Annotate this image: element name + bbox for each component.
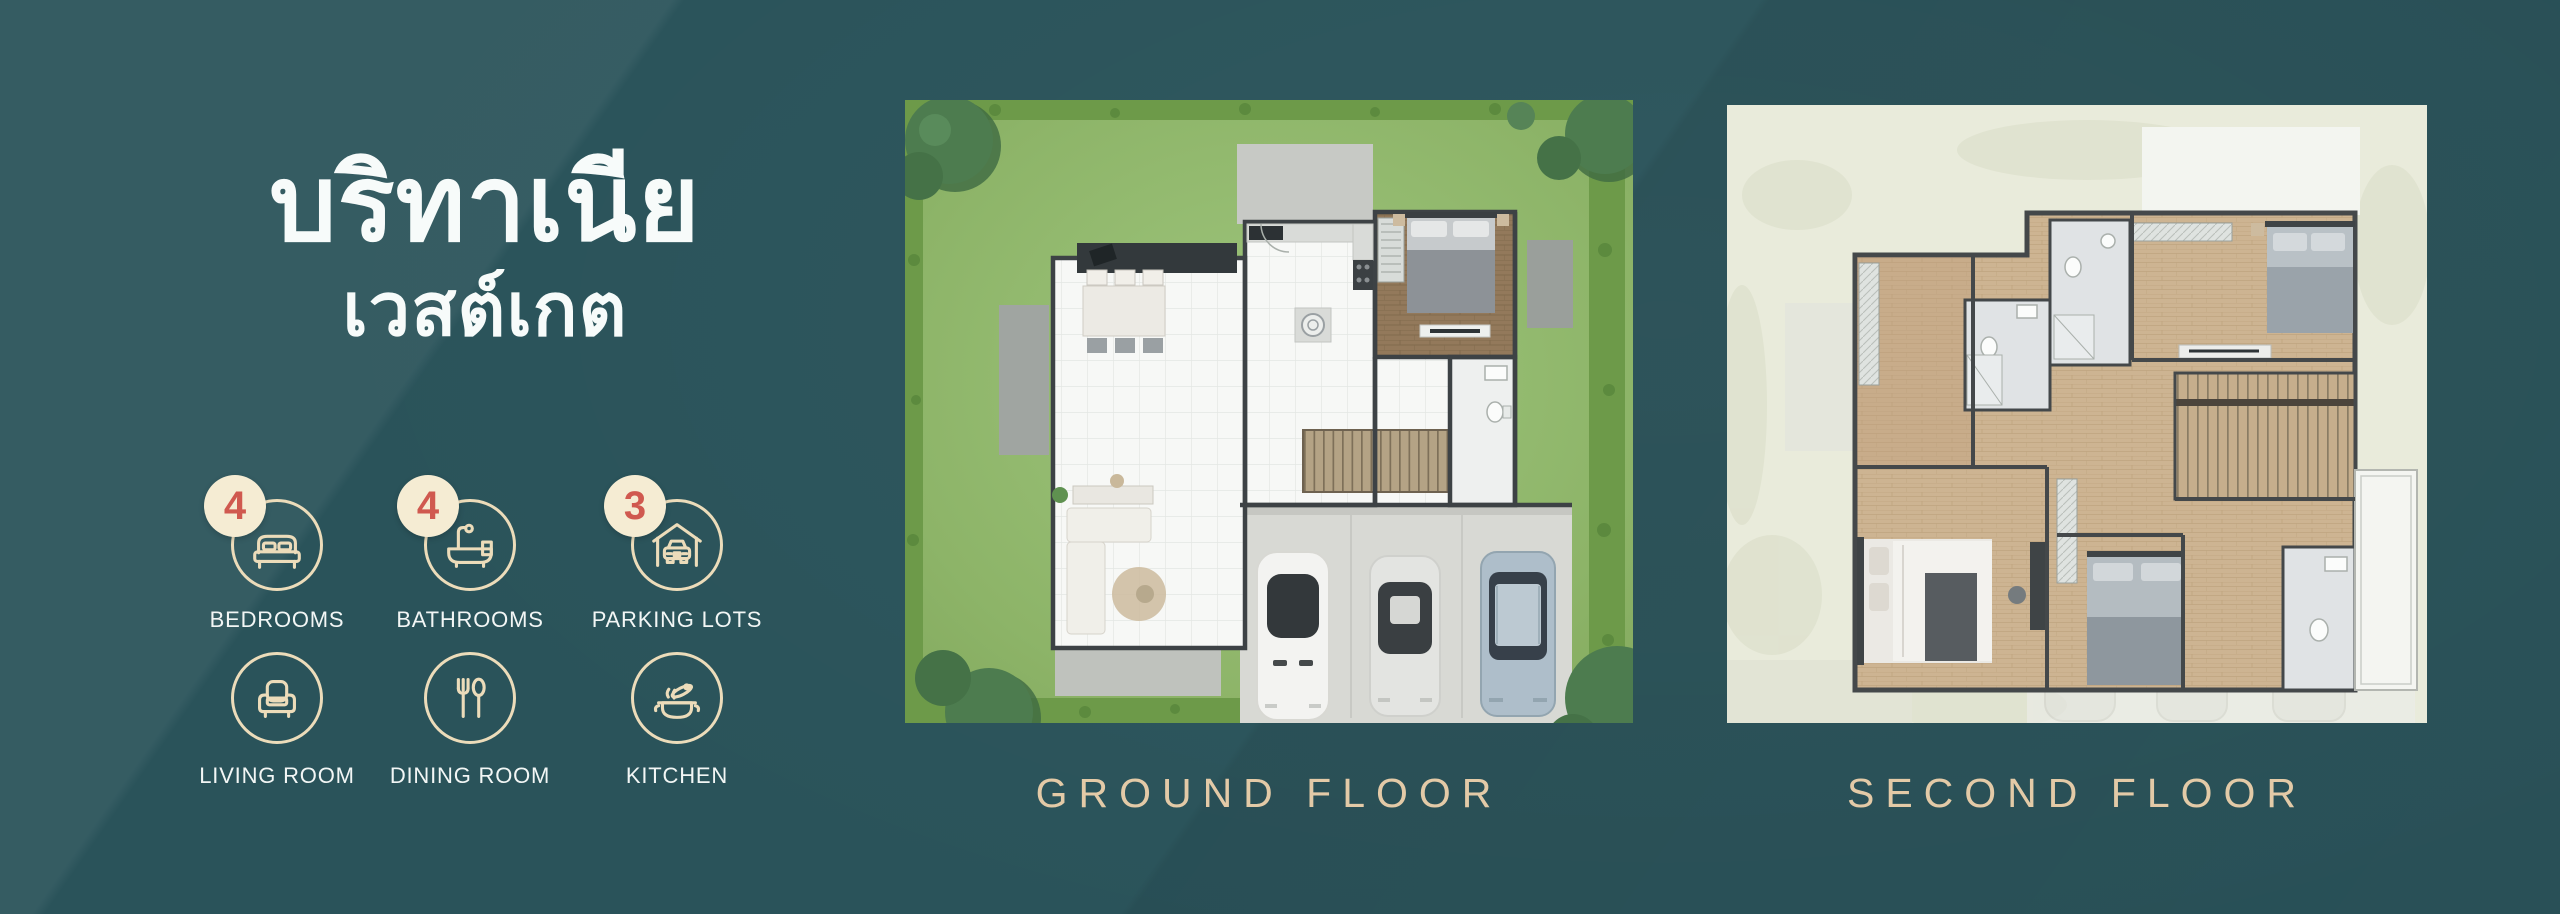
second-floor-plan (1727, 105, 2427, 723)
car-white (1257, 552, 1329, 720)
feature-bedrooms: 4 BEDROOMS (189, 473, 365, 633)
cooking-pot-icon (631, 652, 723, 744)
feature-dining-room: DINING ROOM (382, 652, 558, 789)
feature-parking-label: PARKING LOTS (589, 607, 765, 633)
balcony (2355, 470, 2417, 690)
feature-kitchen: KITCHEN (589, 652, 765, 789)
parking-count-badge: 3 (604, 475, 666, 537)
feature-kitchen-iconstack (631, 652, 723, 744)
bathrooms-count-badge: 4 (397, 475, 459, 537)
car-suv-blue (1481, 552, 1555, 716)
entry-pad (1237, 144, 1373, 224)
feature-living-room: LIVING ROOM (189, 652, 365, 789)
ground-floor-label: GROUND FLOOR (905, 770, 1633, 826)
feature-bathrooms-iconstack: 4 (424, 499, 516, 591)
feature-living-label: LIVING ROOM (189, 763, 365, 789)
feature-bedrooms-label: BEDROOMS (189, 607, 365, 633)
feature-dining-iconstack (424, 652, 516, 744)
feature-bedrooms-iconstack: 4 (231, 499, 323, 591)
car-silver (1370, 556, 1440, 716)
feature-parking-lots: 3 PARKING LOTS (589, 473, 765, 633)
second-stairs (2175, 373, 2355, 499)
dining-set (1083, 270, 1165, 353)
feature-dining-label: DINING ROOM (382, 763, 558, 789)
project-title-line1: บริทาเนีย (135, 150, 835, 258)
feature-bathrooms-label: BATHROOMS (382, 607, 558, 633)
bedrooms-count-badge: 4 (204, 475, 266, 537)
feature-parking-iconstack: 3 (631, 499, 723, 591)
promo-banner: บริทาเนีย เวสต์เกต 4 BEDROOMS 4 (0, 0, 2560, 914)
project-title: บริทาเนีย เวสต์เกต (135, 150, 835, 348)
feature-bathrooms: 4 BATHROOMS (382, 473, 558, 633)
feature-kitchen-label: KITCHEN (589, 763, 765, 789)
project-title-line2: เวสต์เกต (135, 272, 835, 347)
bedroom-bottom-center (2087, 551, 2183, 685)
ground-floor-plan (905, 100, 1633, 723)
feature-living-iconstack (231, 652, 323, 744)
second-floor-label: SECOND FLOOR (1727, 770, 2427, 826)
fork-spoon-icon (424, 652, 516, 744)
armchair-icon (231, 652, 323, 744)
